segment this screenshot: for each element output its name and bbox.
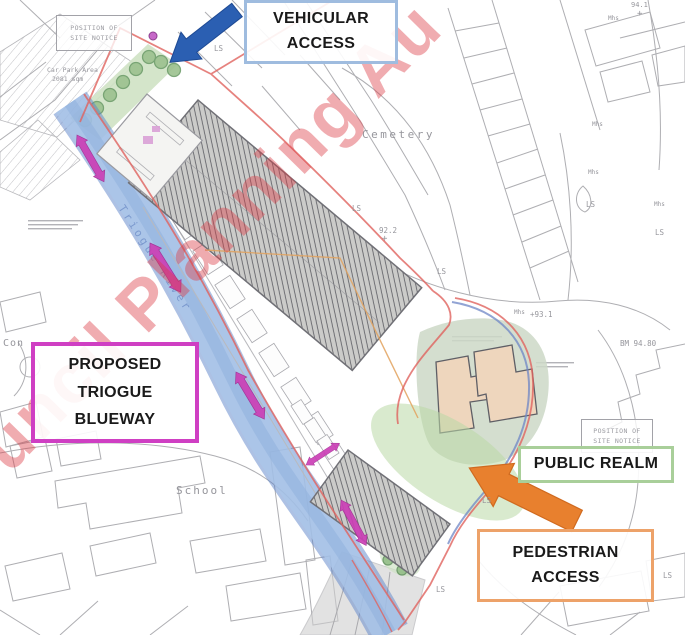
callout-line: PEDESTRIAN <box>480 541 651 566</box>
map-label: Mhs <box>608 15 619 22</box>
map-label: 94.1 <box>631 1 648 9</box>
callout-line: PROPOSED <box>35 351 195 379</box>
vehicular-access-label: VEHICULAR ACCESS <box>244 0 398 64</box>
map-label: +93.1 <box>530 310 553 319</box>
public-realm-label: PUBLIC REALM <box>518 446 674 483</box>
map-label: LS <box>436 585 445 594</box>
pedestrian-access-label: PEDESTRIAN ACCESS <box>477 529 654 602</box>
map-label: 2081 sqm <box>52 75 83 83</box>
map-label: LS <box>482 496 491 505</box>
map-label: LS <box>663 571 672 580</box>
map-label: Cemetery <box>362 128 435 141</box>
site-notice-box: POSITION OFSITE NOTICE <box>56 15 132 51</box>
map-label: Con <box>3 338 24 349</box>
proposed-triogue-blueway-label: PROPOSED TRIOGUE BLUEWAY <box>31 342 199 443</box>
callout-line: ACCESS <box>247 32 395 57</box>
map-label: + <box>382 234 387 244</box>
map-label: LS <box>655 228 664 237</box>
site-plan-figure: Triogue River <box>0 0 685 635</box>
map-label: + <box>637 9 642 19</box>
site-notice-line: SITE NOTICE <box>582 436 652 446</box>
map-label: Mhs <box>654 201 665 208</box>
map-label: Mhs <box>592 121 603 128</box>
callout-line: PUBLIC REALM <box>521 452 671 477</box>
map-label: Car Park Area <box>47 66 98 74</box>
site-notice-line: POSITION OF <box>57 23 131 33</box>
callout-line: TRIOGUE <box>35 379 195 407</box>
site-notice-line: POSITION OF <box>582 426 652 436</box>
map-label: BM 94.80 <box>620 339 656 348</box>
callout-line: BLUEWAY <box>35 406 195 434</box>
callout-line: VEHICULAR <box>247 7 395 32</box>
map-label: LS <box>437 267 446 276</box>
map-label: Mhs <box>588 169 599 176</box>
map-label: LS <box>586 200 595 209</box>
site-notice-line: SITE NOTICE <box>57 33 131 43</box>
map-label: Mhs <box>514 309 525 316</box>
map-label: LS <box>352 204 361 213</box>
map-label: LS <box>214 44 223 53</box>
callout-line: ACCESS <box>480 566 651 591</box>
map-label: School <box>176 484 228 497</box>
